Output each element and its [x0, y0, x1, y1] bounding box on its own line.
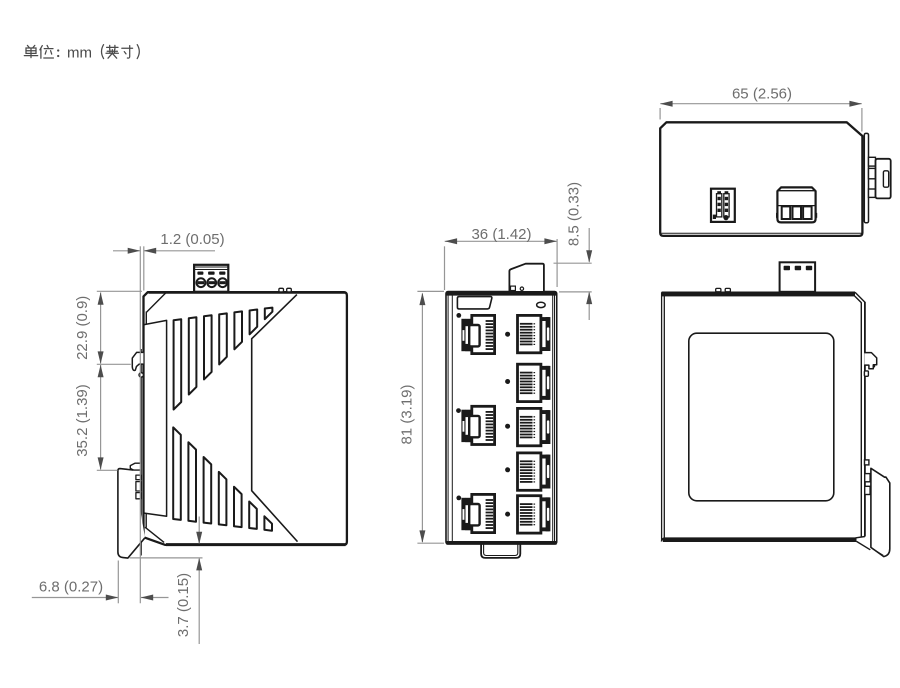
svg-text:65 (2.56): 65 (2.56) — [732, 86, 792, 103]
svg-text:35.2 (1.39): 35.2 (1.39) — [74, 384, 91, 457]
svg-text:3.7 (0.15): 3.7 (0.15) — [175, 573, 192, 637]
svg-text:mm: mm — [67, 45, 92, 62]
svg-text:81 (3.19): 81 (3.19) — [398, 384, 415, 444]
svg-text:1.2 (0.05): 1.2 (0.05) — [160, 231, 224, 248]
svg-text:6.8 (0.27): 6.8 (0.27) — [39, 579, 103, 596]
svg-text:36 (1.42): 36 (1.42) — [471, 226, 531, 243]
svg-text:22.9 (0.9): 22.9 (0.9) — [74, 296, 91, 360]
svg-text:8.5 (0.33): 8.5 (0.33) — [565, 182, 582, 246]
